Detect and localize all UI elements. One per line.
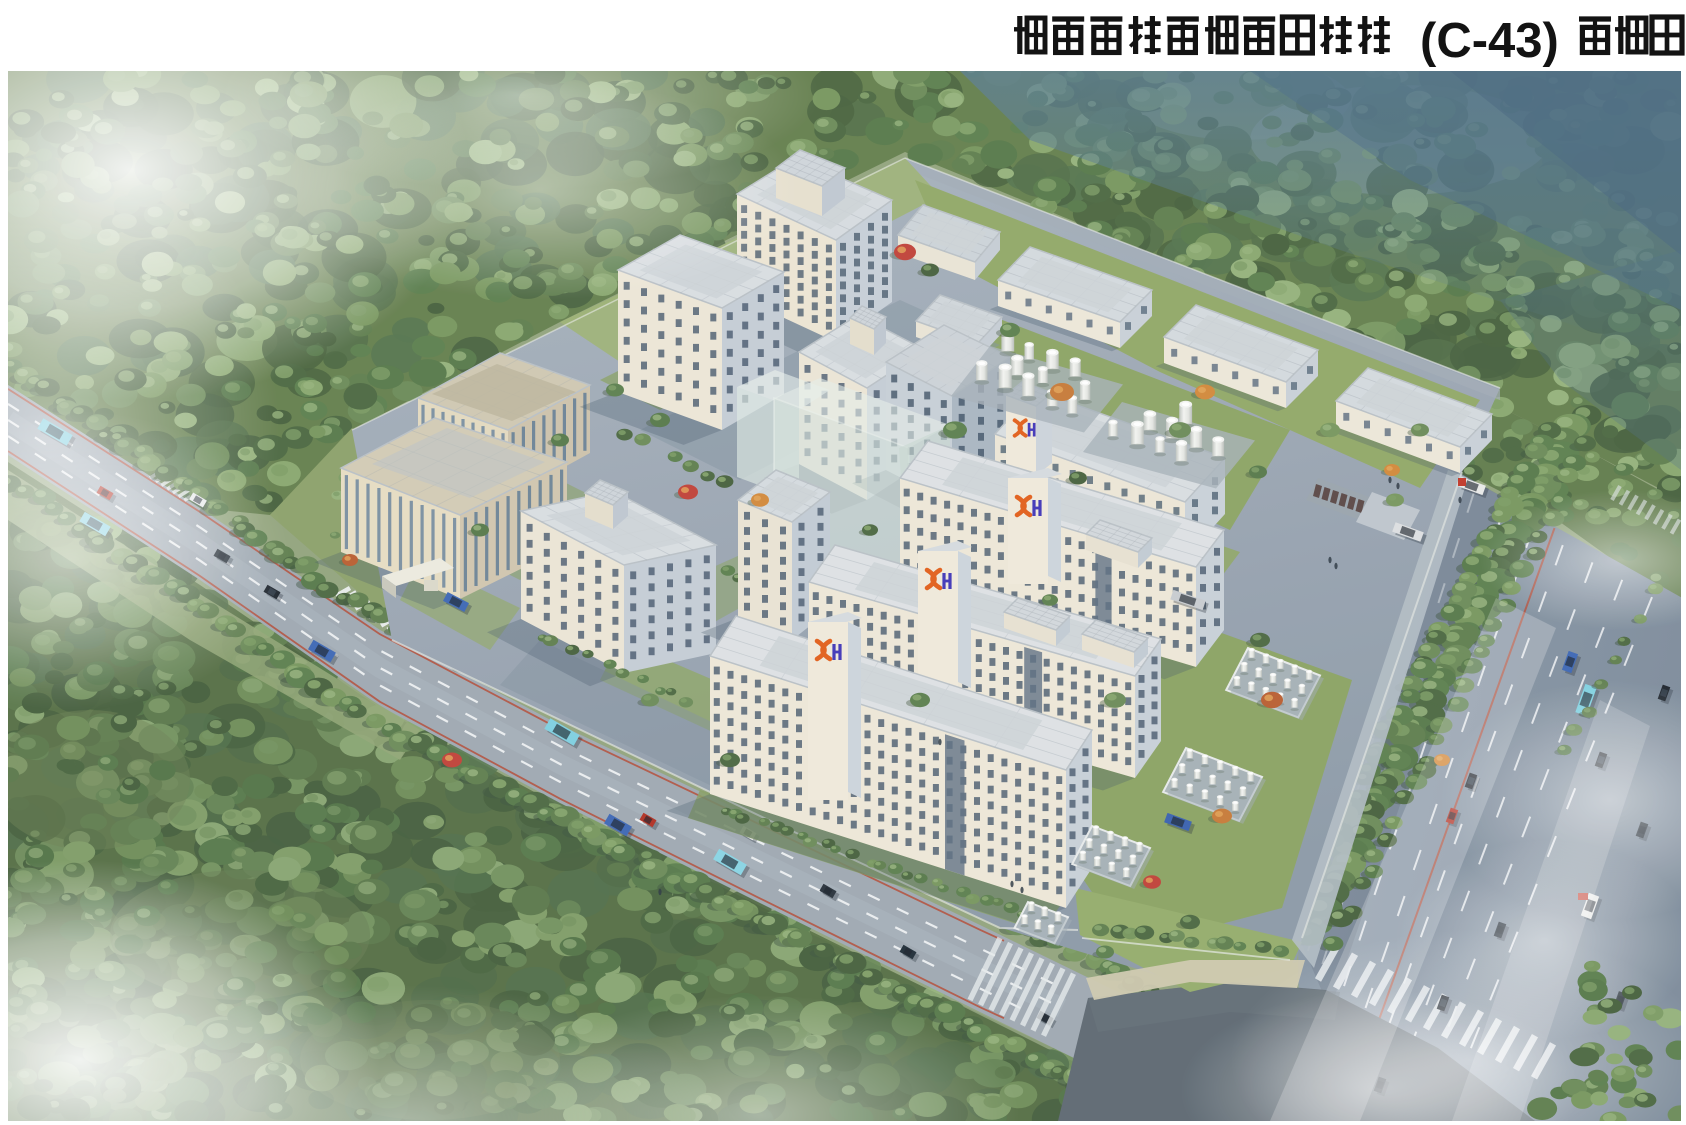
svg-text:(C-43): (C-43) [1420, 14, 1559, 68]
